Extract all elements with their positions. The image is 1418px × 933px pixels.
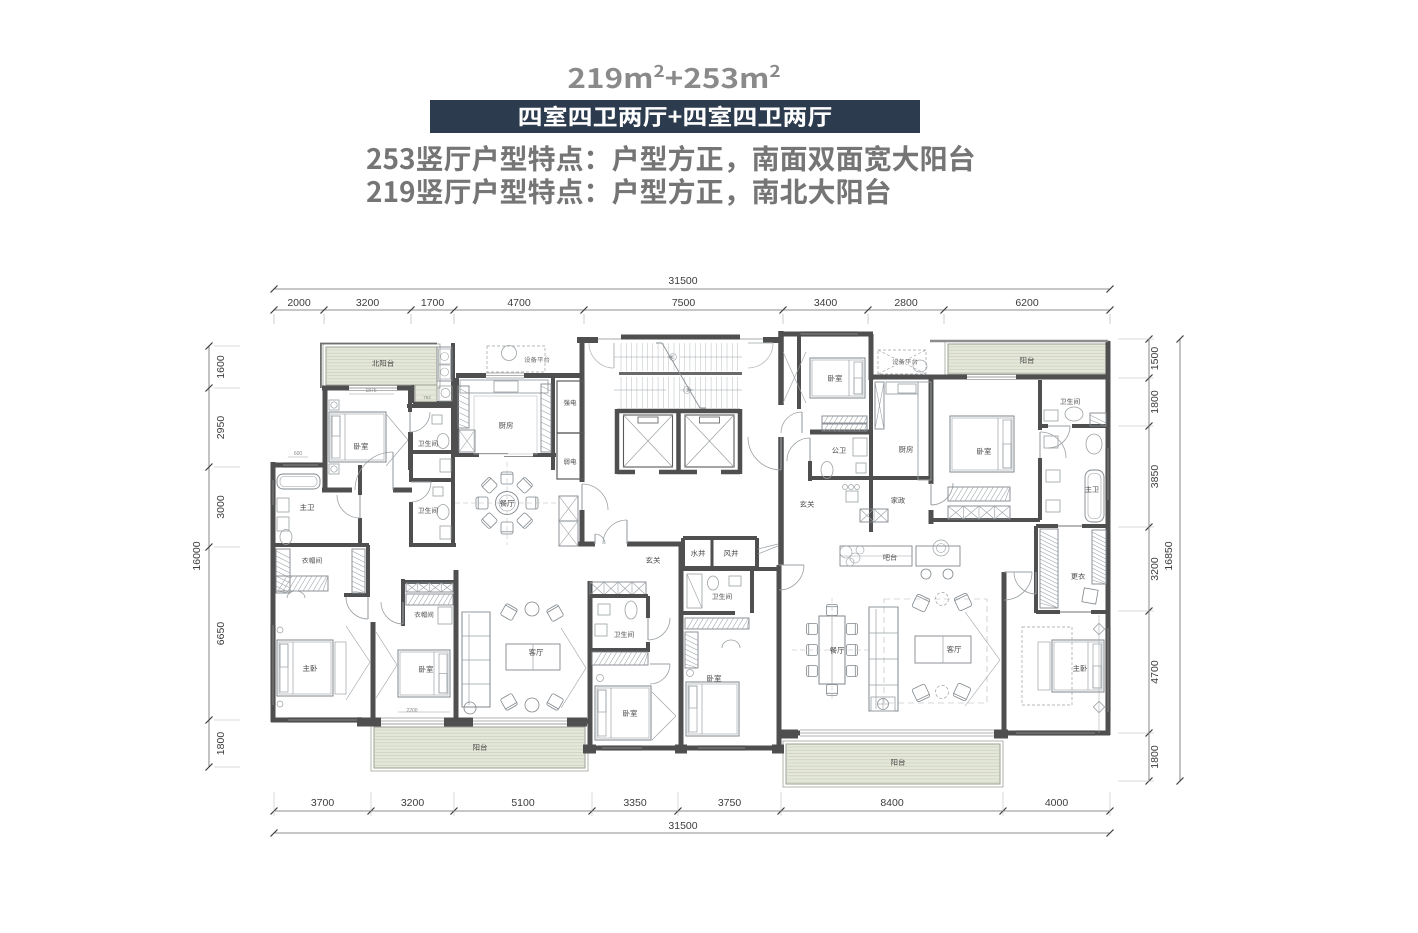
svg-text:1875: 1875 — [365, 388, 376, 394]
svg-text:600: 600 — [294, 451, 303, 457]
svg-text:3400: 3400 — [814, 297, 838, 309]
svg-text:3750: 3750 — [718, 797, 742, 809]
svg-text:4700: 4700 — [1149, 660, 1161, 684]
svg-text:2800: 2800 — [894, 297, 918, 309]
svg-text:31500: 31500 — [668, 275, 697, 287]
svg-text:1500: 1500 — [1149, 347, 1161, 371]
svg-text:16850: 16850 — [1163, 541, 1175, 570]
svg-text:1700: 1700 — [421, 297, 445, 309]
svg-text:31500: 31500 — [668, 820, 697, 832]
svg-text:7500: 7500 — [672, 297, 696, 309]
svg-text:16000: 16000 — [191, 541, 203, 570]
svg-text:3200: 3200 — [401, 797, 425, 809]
svg-text:8400: 8400 — [880, 797, 904, 809]
svg-text:4700: 4700 — [507, 297, 531, 309]
svg-text:1800: 1800 — [1149, 745, 1161, 769]
svg-text:1800: 1800 — [215, 732, 227, 756]
svg-text:3200: 3200 — [1149, 557, 1161, 581]
svg-text:3000: 3000 — [215, 495, 227, 519]
svg-text:3700: 3700 — [311, 797, 335, 809]
svg-text:752: 752 — [423, 395, 431, 400]
svg-text:6200: 6200 — [1015, 297, 1039, 309]
svg-text:1600: 1600 — [215, 355, 227, 379]
svg-text:2950: 2950 — [215, 416, 227, 440]
svg-text:2000: 2000 — [287, 297, 311, 309]
svg-text:1800: 1800 — [1149, 390, 1161, 414]
svg-text:3350: 3350 — [623, 797, 647, 809]
svg-text:6650: 6650 — [215, 622, 227, 646]
svg-text:3850: 3850 — [1149, 465, 1161, 489]
svg-text:2200: 2200 — [406, 708, 417, 714]
svg-text:4000: 4000 — [1045, 797, 1069, 809]
svg-text:5100: 5100 — [511, 797, 535, 809]
svg-text:3200: 3200 — [356, 297, 380, 309]
